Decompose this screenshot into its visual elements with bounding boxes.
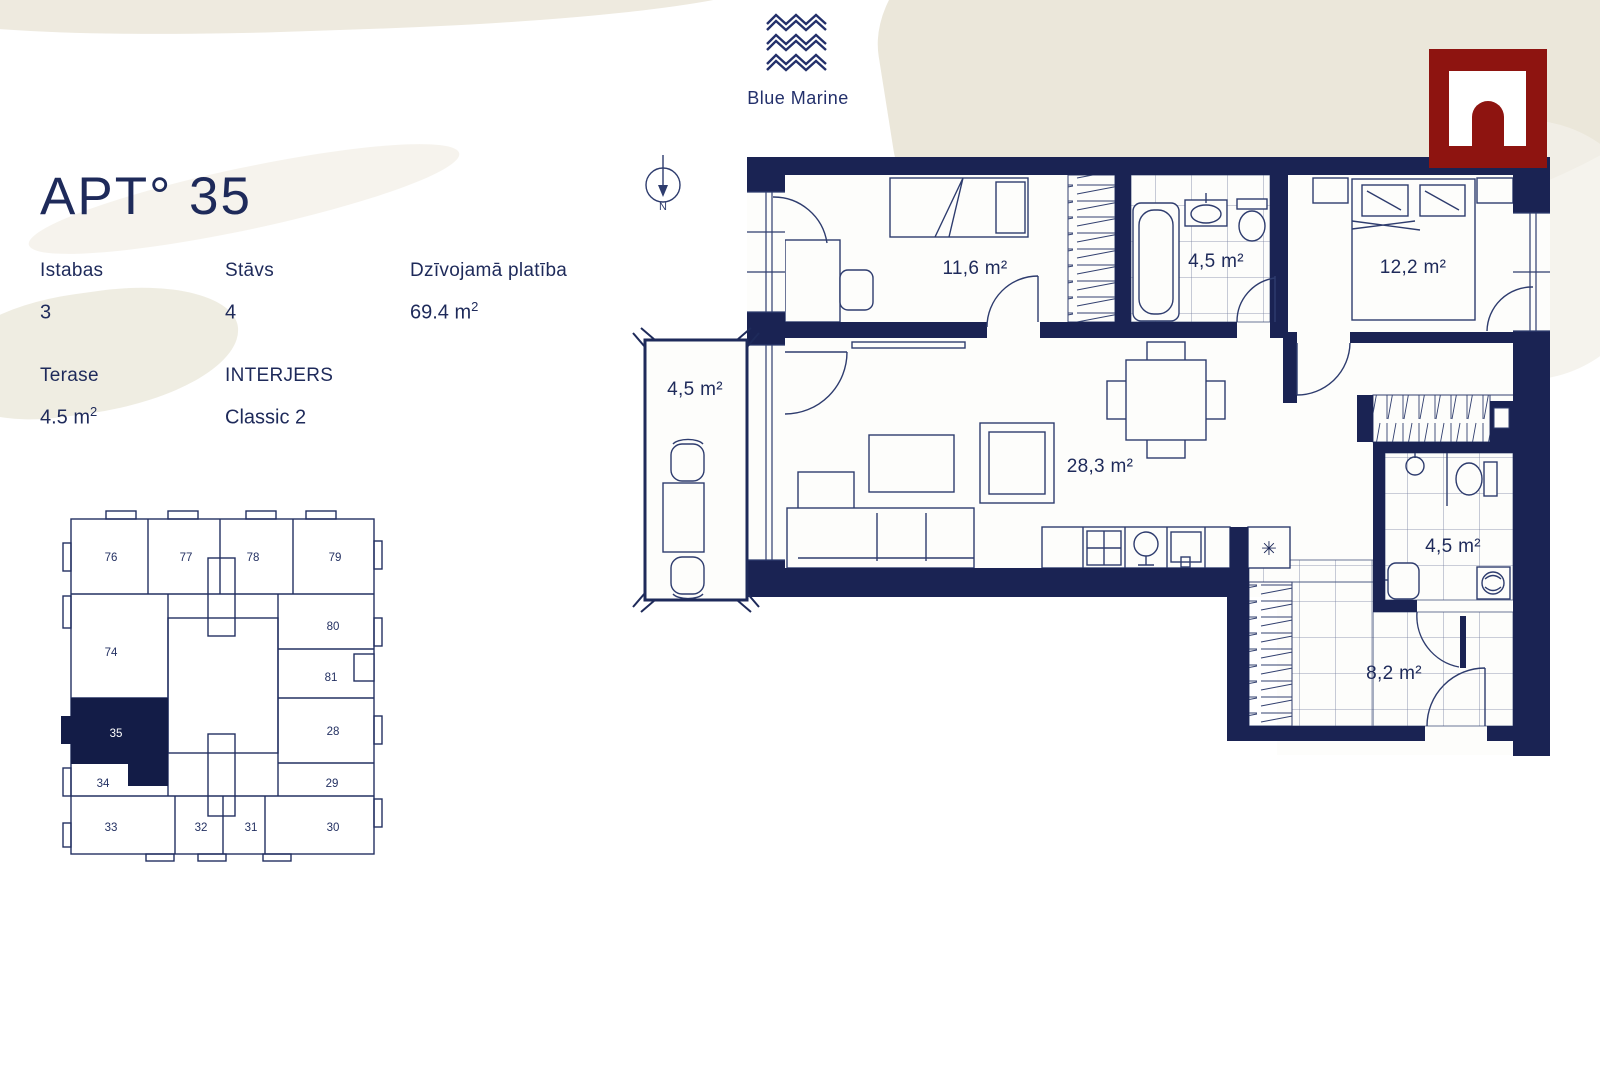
detail-sup: 2 xyxy=(90,404,97,419)
key-plan-unit: 76 xyxy=(105,552,118,564)
background-texture xyxy=(0,0,761,45)
detail-value: 4 xyxy=(225,302,236,324)
detail-value: Classic 2 xyxy=(225,407,306,429)
key-plan-unit: 31 xyxy=(245,822,258,834)
detail-sup: 2 xyxy=(471,299,478,314)
detail-terase: Terase 4.5 m2 xyxy=(40,365,99,430)
detail-label: Istabas xyxy=(40,260,103,282)
wave-logo-icon xyxy=(764,12,832,78)
room-label-living: 28,3 m² xyxy=(1067,456,1134,477)
detail-value: 4.5 m xyxy=(40,407,90,429)
key-plan-unit: 77 xyxy=(180,552,193,564)
kitchen-marker-icon: ✳ xyxy=(1261,539,1277,560)
detail-label: Stāvs xyxy=(225,260,274,282)
room-label-bathroom-2: 4,5 m² xyxy=(1425,536,1481,557)
room-label-bedroom-1: 11,6 m² xyxy=(942,258,1007,279)
arch-icon xyxy=(1472,101,1504,146)
apartment-floor-plan: N xyxy=(615,133,1555,763)
detail-platiba: Dzīvojamā platība 69.4 m2 xyxy=(410,260,567,325)
wall-niche xyxy=(1494,408,1509,428)
key-plan-unit: 78 xyxy=(247,552,260,564)
building-key-plan: 76 77 78 79 74 80 81 35 28 34 29 33 32 3… xyxy=(58,506,388,866)
background-texture xyxy=(0,272,247,431)
brand-header: Blue Marine xyxy=(698,12,898,109)
key-plan-unit: 81 xyxy=(325,672,338,684)
north-compass: N xyxy=(646,155,680,213)
detail-label: Dzīvojamā platība xyxy=(410,260,567,282)
detail-stavs: Stāvs 4 xyxy=(225,260,274,325)
key-plan-unit: 29 xyxy=(326,778,339,790)
key-plan-unit-highlighted: 35 xyxy=(110,728,123,740)
arch-logo-inner xyxy=(1449,71,1526,146)
page-title: APT° 35 xyxy=(40,166,252,227)
arch-logo xyxy=(1429,49,1547,168)
detail-interjers: INTERJERS Classic 2 xyxy=(225,365,333,430)
room-label-hallway: 8,2 m² xyxy=(1366,663,1422,684)
detail-label: INTERJERS xyxy=(225,365,333,387)
key-plan-unit: 34 xyxy=(97,778,110,790)
room-label-balcony: 4,5 m² xyxy=(667,379,723,400)
detail-istabas: Istabas 3 xyxy=(40,260,103,325)
key-plan-unit: 33 xyxy=(105,822,118,834)
room-label-bedroom-2: 12,2 m² xyxy=(1380,257,1447,278)
key-plan-unit: 79 xyxy=(329,552,342,564)
key-plan-unit: 74 xyxy=(105,647,118,659)
key-plan-unit: 32 xyxy=(195,822,208,834)
detail-value: 3 xyxy=(40,302,51,324)
detail-label: Terase xyxy=(40,365,99,387)
brand-name: Blue Marine xyxy=(698,88,898,109)
compass-label: N xyxy=(659,201,667,213)
key-plan-unit: 30 xyxy=(327,822,340,834)
key-plan-unit: 80 xyxy=(327,621,340,633)
key-plan-unit: 28 xyxy=(327,726,340,738)
detail-value: 69.4 m xyxy=(410,302,471,324)
room-label-bathroom-1: 4,5 m² xyxy=(1188,251,1244,272)
